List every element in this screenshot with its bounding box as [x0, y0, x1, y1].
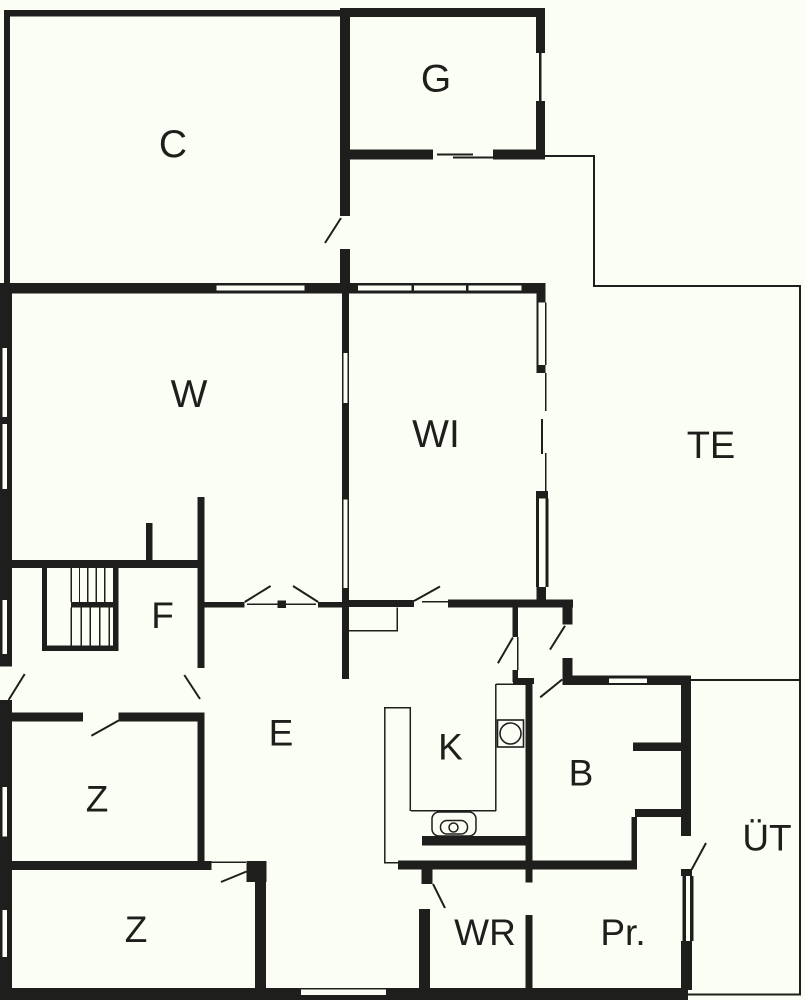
svg-text:W: W [171, 373, 208, 416]
svg-text:E: E [269, 713, 294, 754]
svg-text:ÜT: ÜT [742, 818, 791, 859]
svg-text:Pr.: Pr. [600, 912, 645, 953]
svg-text:WR: WR [454, 912, 516, 953]
svg-text:WI: WI [412, 413, 460, 456]
svg-text:TE: TE [687, 425, 736, 467]
svg-text:Z: Z [125, 909, 148, 950]
svg-text:K: K [438, 727, 463, 768]
svg-text:G: G [421, 58, 451, 101]
svg-text:B: B [569, 753, 594, 794]
svg-text:Z: Z [86, 779, 109, 820]
svg-text:F: F [151, 595, 174, 636]
svg-text:C: C [159, 123, 187, 166]
